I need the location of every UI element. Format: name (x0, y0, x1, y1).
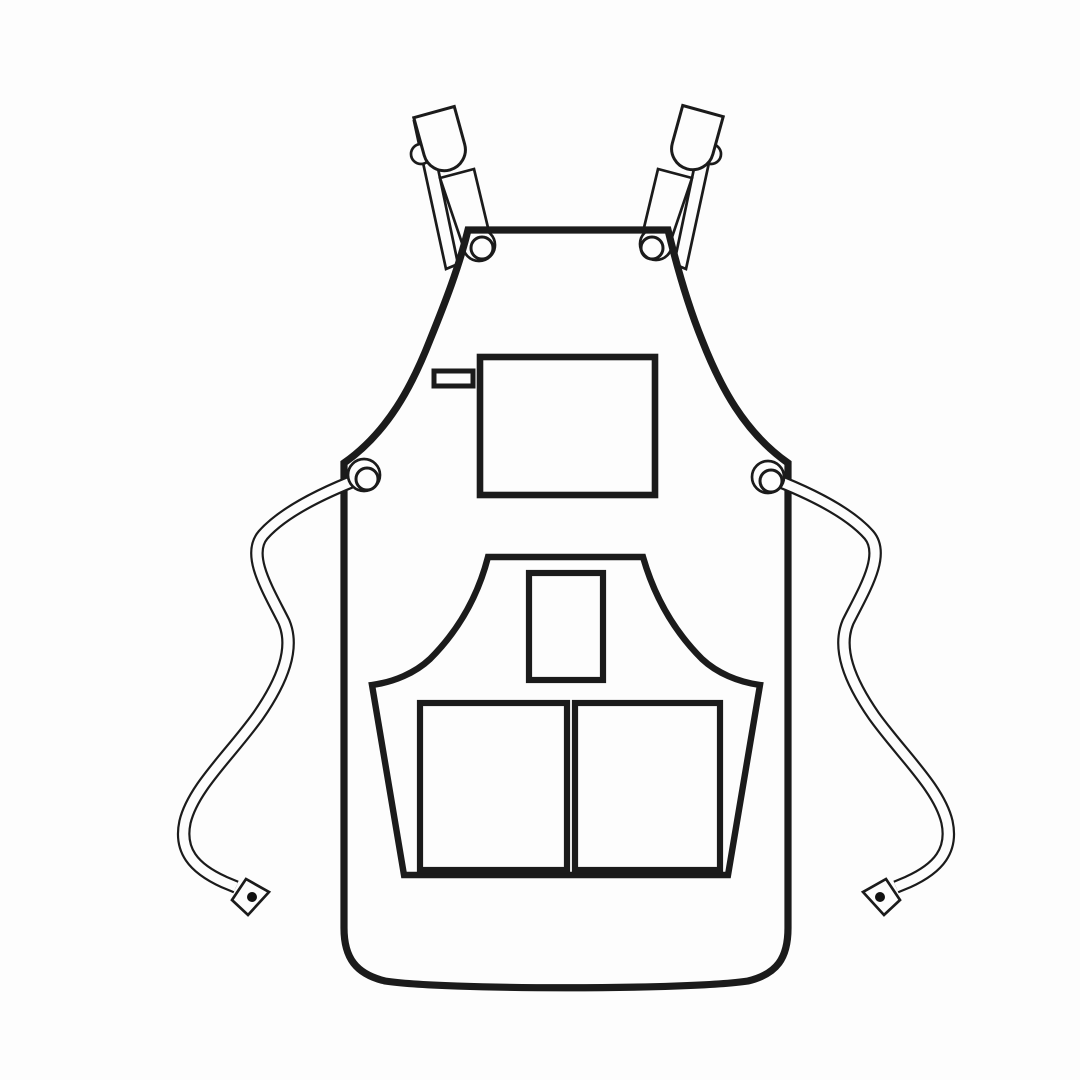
right-waist-tie (771, 478, 948, 915)
left-waist-tie-outline (184, 478, 361, 887)
left-tie-aglet-dot (247, 892, 257, 902)
right-main-pocket (575, 703, 720, 870)
center-tool-pocket (529, 573, 603, 680)
drawing-root (184, 106, 949, 988)
pen-slot (434, 371, 473, 386)
left-waist-tie (184, 478, 361, 915)
apron-illustration (0, 0, 1080, 1080)
right-waist-grommet (760, 470, 782, 492)
apron-line-drawing (0, 0, 1080, 1080)
chest-pocket (480, 357, 655, 495)
left-waist-grommet (356, 468, 378, 490)
left-main-pocket (420, 703, 567, 870)
right-tie-aglet-dot (875, 892, 885, 902)
right-waist-tie-outline (771, 478, 948, 887)
